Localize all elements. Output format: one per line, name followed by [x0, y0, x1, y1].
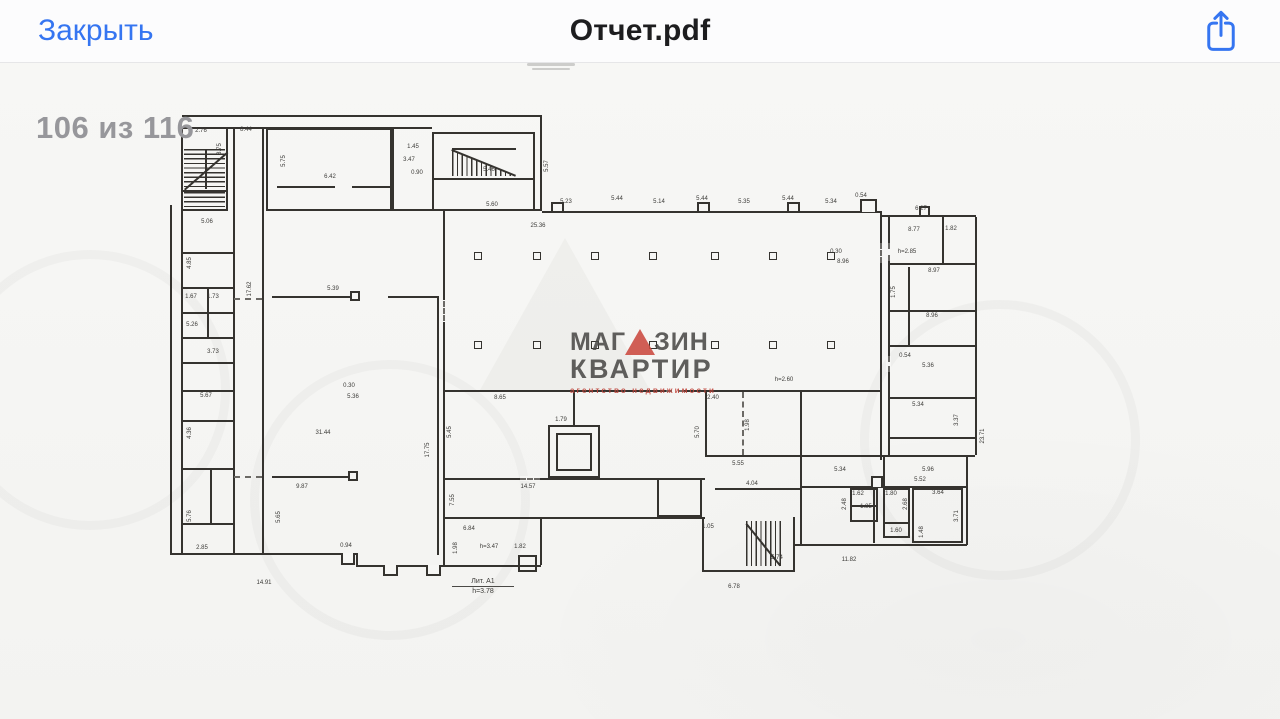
plan-h [883, 522, 910, 524]
dimension-label: 8.65 [494, 395, 506, 401]
share-button[interactable] [1200, 8, 1242, 54]
dimension-label: 4.36 [187, 427, 193, 439]
dimension-label: 3.37 [954, 414, 960, 426]
plan-h [181, 523, 233, 525]
hall-column [649, 252, 657, 260]
dimension-label: 3.73 [207, 349, 219, 355]
dimension-label: 8.44 [240, 127, 252, 133]
scan-smudge [532, 68, 570, 70]
page-indicator: 106 из 116 [36, 110, 194, 146]
plan-rb [871, 476, 883, 487]
dimension-label: 1.98 [745, 419, 751, 431]
logo-text: КВАРТИР [570, 355, 730, 384]
plan-h [181, 420, 233, 422]
scan-watermark [250, 360, 530, 640]
dimension-label: 5.52 [914, 477, 926, 483]
plan-h [181, 468, 233, 470]
plan-h [452, 148, 516, 150]
share-icon [1200, 42, 1242, 57]
plan-rb [860, 199, 877, 212]
dimension-label: 6.84 [463, 526, 475, 532]
plan-rt [426, 565, 441, 576]
plan-h [795, 544, 967, 546]
dimension-label: 1.45 [407, 144, 419, 150]
dimension-label: 1.62 [852, 491, 864, 497]
dimension-label: 0.54 [855, 193, 867, 199]
dimension-label: 5.26 [186, 322, 198, 328]
dimension-label: 1.48 [919, 526, 925, 538]
plan-h [170, 553, 357, 555]
dimension-label: 2.40 [707, 395, 719, 401]
plan-v [233, 127, 235, 553]
plan-h [181, 252, 233, 254]
dimension-label: 5.46 [483, 167, 495, 173]
logo-text: МАГ [570, 329, 626, 355]
plan-v [573, 392, 575, 425]
dimension-label: 5.67 [200, 393, 212, 399]
plan-v [966, 455, 968, 545]
plan-v [873, 488, 875, 543]
plan-h [443, 478, 705, 480]
plan-v [942, 217, 944, 263]
plan-r [657, 478, 702, 517]
plan-dh [234, 476, 262, 478]
dimension-label: 1.82 [945, 226, 957, 232]
logo-line1: МАГ ЗИН [570, 329, 730, 355]
agency-watermark-logo: МАГ ЗИН КВАРТИР агентство недвижимости [570, 329, 730, 395]
plan-v [975, 217, 977, 455]
hall-column [533, 341, 541, 349]
plan-hatchH [184, 192, 225, 210]
dimension-label: h=3.47 [480, 544, 499, 550]
logo-triangle-icon [625, 329, 655, 355]
plan-h [888, 263, 975, 265]
dimension-label: 14.91 [256, 580, 271, 586]
plan-rb [787, 202, 800, 211]
dimension-label: 5.35 [738, 199, 750, 205]
plan-dv [443, 301, 445, 321]
plan-h [705, 455, 883, 457]
plan-rt [383, 565, 398, 576]
dimension-label: 1.75 [891, 286, 897, 298]
dimension-label: 3.47 [403, 157, 415, 163]
dimension-label: 9.87 [296, 484, 308, 490]
dimension-label: 2.48 [842, 498, 848, 510]
dimension-label: 1.60 [890, 528, 902, 534]
dimension-label: 5.23 [560, 199, 572, 205]
plan-h [432, 178, 535, 180]
dimension-label: 5.44 [611, 196, 623, 202]
hall-column [474, 341, 482, 349]
plan-h [702, 570, 795, 572]
dimension-label: 5.74 [771, 555, 783, 561]
dimension-label: 5.75 [281, 155, 287, 167]
pdf-viewer-screen: МАГ ЗИН КВАРТИР агентство недвижимости Л… [0, 0, 1280, 719]
dimension-label: 1.79 [555, 417, 567, 423]
plan-h [272, 476, 350, 478]
dimension-label: 5.96 [922, 467, 934, 473]
plan-r [556, 433, 592, 471]
plan-h [880, 215, 976, 217]
plan-h [182, 115, 540, 117]
plan-h [277, 186, 335, 188]
dimension-label: 1.82 [514, 544, 526, 550]
plan-dv [888, 356, 890, 372]
floor-plan: МАГ ЗИН КВАРТИР агентство недвижимости Л… [0, 0, 1280, 719]
plan-v [883, 455, 885, 486]
dimension-label: 8.97 [928, 268, 940, 274]
hall-column [711, 252, 719, 260]
plan-v [800, 392, 802, 545]
plan-v [437, 296, 439, 555]
dimension-label: 5.34 [912, 402, 924, 408]
dimension-label: 17.75 [425, 442, 431, 457]
dimension-label: 0.30 [830, 249, 842, 255]
plan-h [388, 296, 438, 298]
dimension-label: 5.44 [696, 196, 708, 202]
dimension-label: 5.65 [276, 511, 282, 523]
scan-watermark [860, 300, 1140, 580]
plan-h [715, 488, 800, 490]
dimension-label: 14.57 [520, 484, 535, 490]
plan-h [888, 310, 975, 312]
plan-v [540, 115, 542, 211]
dimension-label: 3.64 [932, 490, 944, 496]
dimension-label: 5.34 [825, 199, 837, 205]
plan-h [443, 517, 705, 519]
plan-dv [880, 243, 882, 263]
plan-v [540, 517, 542, 565]
dimension-label: 5.45 [447, 426, 453, 438]
dimension-label: 5.70 [695, 426, 701, 438]
plan-dh [234, 298, 262, 300]
dimension-label: 1.73 [207, 294, 219, 300]
dimension-label: 25.36 [530, 223, 545, 229]
dimension-label: 0.30 [343, 383, 355, 389]
plan-h [181, 362, 233, 364]
plan-rb [697, 202, 710, 211]
dimension-label: 4.85 [187, 257, 193, 269]
plan-r [518, 555, 537, 572]
dimension-label: 5.36 [922, 363, 934, 369]
dimension-label: 2.85 [196, 545, 208, 551]
dimension-label: 11.82 [842, 557, 857, 563]
dimension-label: h=2.85 [898, 249, 917, 255]
hall-column [769, 252, 777, 260]
dimension-label: 4.04 [746, 481, 758, 487]
plan-v [181, 211, 183, 553]
plan-v [392, 128, 394, 211]
dimension-label: 1.05 [702, 524, 714, 530]
dimension-label: 5.60 [486, 202, 498, 208]
dimension-label: 5.36 [347, 394, 359, 400]
dimension-label: h=2.60 [775, 377, 794, 383]
plan-v [210, 468, 212, 523]
hall-column [591, 252, 599, 260]
dimension-label: 3.71 [954, 510, 960, 522]
litera-name: Лит. А1 [452, 578, 514, 587]
plan-h [542, 211, 880, 213]
plan-v [443, 211, 445, 300]
dimension-label: 1.67 [185, 294, 197, 300]
dimension-label: 3.75 [217, 143, 223, 155]
plan-h [352, 186, 392, 188]
dimension-label: 5.57 [544, 160, 550, 172]
dimension-label: 7.55 [450, 494, 456, 506]
plan-rt [341, 553, 355, 565]
dimension-label: 5.06 [201, 219, 213, 225]
hall-column [769, 341, 777, 349]
dimension-label: 1.80 [885, 491, 897, 497]
logo-text: ЗИН [654, 329, 709, 355]
plan-v [205, 149, 207, 189]
dimension-label: 0.94 [340, 543, 352, 549]
plan-v [908, 267, 910, 345]
plan-h [883, 455, 975, 457]
dimension-label: 6.42 [324, 174, 336, 180]
dimension-label: 2.76 [195, 128, 207, 134]
dimension-label: 5.39 [327, 286, 339, 292]
plan-h [888, 345, 975, 347]
dimension-label: 5.34 [834, 467, 846, 473]
dimension-label: 31.44 [315, 430, 330, 436]
dimension-label: 5.76 [187, 510, 193, 522]
navigation-bar: Закрыть Отчет.pdf [0, 0, 1280, 63]
litera-height: h=3.78 [452, 587, 514, 595]
document-title: Отчет.pdf [0, 14, 1280, 48]
hall-column [474, 252, 482, 260]
plan-r [348, 471, 358, 481]
logo-tagline: агентство недвижимости [570, 386, 730, 395]
plan-r [266, 128, 392, 211]
dimension-label: 5.55 [732, 461, 744, 467]
hall-column [533, 252, 541, 260]
dimension-label: 17.62 [247, 281, 253, 296]
plan-h [181, 390, 233, 392]
litera-label: Лит. А1 h=3.78 [452, 578, 514, 595]
plan-dv [742, 392, 744, 455]
plan-v [262, 127, 264, 553]
plan-h [272, 296, 352, 298]
scan-smudge [527, 63, 575, 66]
dimension-label: 8.77 [908, 227, 920, 233]
plan-v [170, 205, 172, 553]
dimension-label: 8.96 [926, 313, 938, 319]
plan-dh [520, 478, 540, 480]
plan-h [888, 437, 975, 439]
plan-h [181, 337, 233, 339]
plan-v [443, 322, 445, 567]
plan-dv [888, 243, 890, 261]
dimension-label: 5.44 [782, 196, 794, 202]
dimension-label: 1.98 [453, 542, 459, 554]
dimension-label: 0.90 [411, 170, 423, 176]
dimension-label: 8.96 [837, 259, 849, 265]
dimension-label: 5.14 [653, 199, 665, 205]
plan-h [888, 397, 975, 399]
dimension-label: 6.78 [728, 584, 740, 590]
dimension-label: 6.27 [915, 206, 927, 212]
dimension-label: 0.54 [899, 353, 911, 359]
dimension-label: 23.71 [980, 428, 986, 443]
dimension-label: 1.85 [860, 504, 872, 510]
hall-column [827, 341, 835, 349]
plan-r [350, 291, 360, 301]
plan-h [266, 209, 542, 211]
dimension-label: 2.68 [903, 498, 909, 510]
